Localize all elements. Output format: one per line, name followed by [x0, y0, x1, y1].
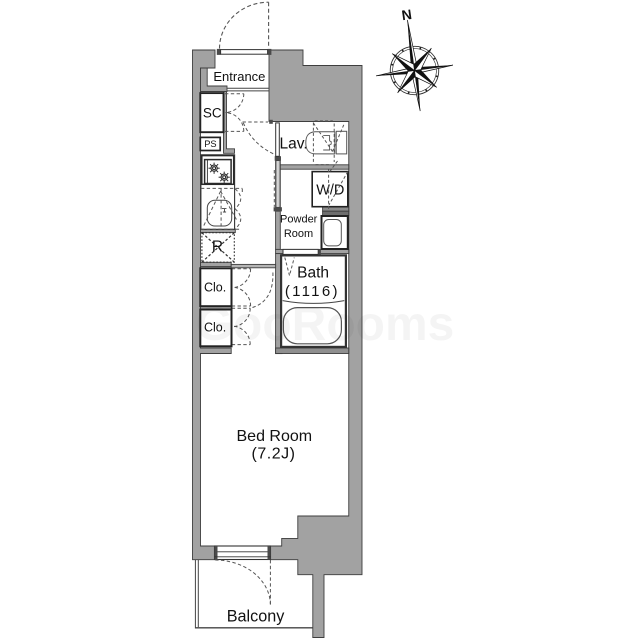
svg-text:Entrance: Entrance [213, 69, 265, 84]
svg-text:Clo.: Clo. [204, 281, 226, 295]
svg-text:Powder: Powder [280, 214, 318, 226]
svg-text:Lav.: Lav. [280, 135, 308, 152]
svg-text:PS: PS [204, 139, 216, 149]
svg-text:SC: SC [203, 106, 222, 121]
svg-text:GooRooms: GooRooms [196, 298, 455, 351]
svg-text:(7.2J): (7.2J) [252, 446, 296, 463]
svg-text:Balcony: Balcony [227, 607, 285, 625]
svg-text:Room: Room [284, 228, 313, 240]
svg-text:Bath: Bath [297, 265, 329, 282]
svg-text:Bed Room: Bed Room [237, 428, 313, 445]
svg-text:R: R [212, 239, 223, 256]
svg-text:W/D: W/D [316, 182, 344, 198]
